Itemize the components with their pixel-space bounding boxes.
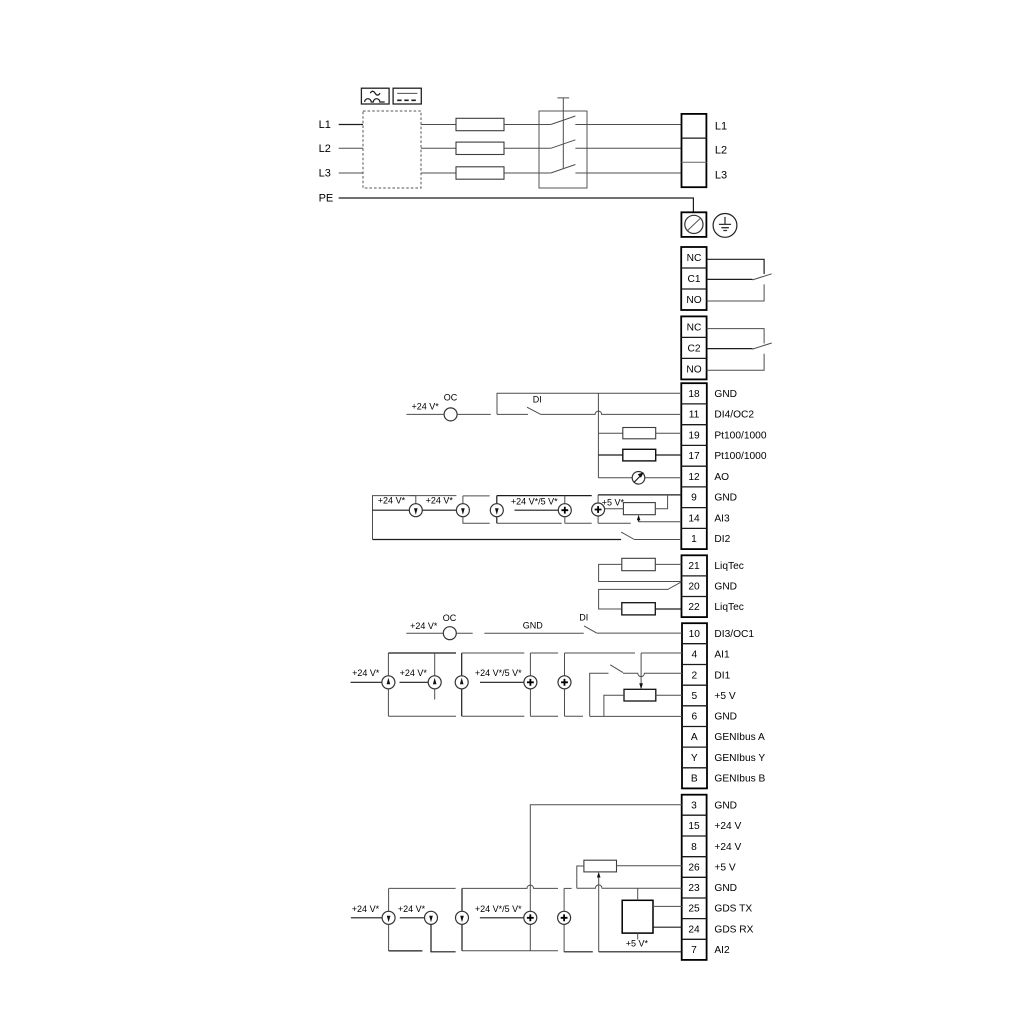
svg-text:+5 V: +5 V xyxy=(714,691,735,702)
svg-text:Pt100/1000: Pt100/1000 xyxy=(714,431,766,442)
svg-text:NO: NO xyxy=(686,364,701,375)
svg-text:NC: NC xyxy=(687,253,702,264)
svg-text:+24 V*/5 V*: +24 V*/5 V* xyxy=(511,496,558,506)
svg-text:A: A xyxy=(691,732,698,743)
svg-text:19: 19 xyxy=(688,431,700,442)
svg-text:GND: GND xyxy=(714,389,737,400)
svg-text:NO: NO xyxy=(686,295,701,306)
svg-text:L2: L2 xyxy=(715,145,727,157)
svg-text:AI3: AI3 xyxy=(714,513,730,524)
svg-text:+24 V*: +24 V* xyxy=(398,904,426,914)
svg-text:+5 V*: +5 V* xyxy=(626,939,649,949)
svg-text:GENIbus B: GENIbus B xyxy=(714,774,765,785)
svg-text:GND: GND xyxy=(714,883,737,894)
svg-text:8: 8 xyxy=(691,842,697,853)
svg-text:GDS RX: GDS RX xyxy=(714,924,753,935)
svg-text:DI: DI xyxy=(533,395,542,405)
svg-text:+24 V*: +24 V* xyxy=(378,495,406,505)
svg-text:10: 10 xyxy=(689,629,701,640)
svg-text:21: 21 xyxy=(688,561,700,572)
svg-text:L2: L2 xyxy=(319,143,331,155)
svg-text:3: 3 xyxy=(691,800,697,811)
svg-text:DI3/OC1: DI3/OC1 xyxy=(714,629,754,640)
svg-text:5: 5 xyxy=(691,691,697,702)
svg-text:+24 V: +24 V xyxy=(714,821,741,832)
svg-text:AI1: AI1 xyxy=(714,650,730,661)
svg-text:OC: OC xyxy=(443,613,457,623)
svg-text:+24 V*: +24 V* xyxy=(412,402,440,412)
svg-text:Pt100/1000: Pt100/1000 xyxy=(714,451,766,462)
svg-text:18: 18 xyxy=(688,389,700,400)
svg-text:+24 V: +24 V xyxy=(714,842,741,853)
svg-text:+24 V*: +24 V* xyxy=(410,621,438,631)
svg-text:LiqTec: LiqTec xyxy=(714,561,743,572)
svg-text:GND: GND xyxy=(714,493,737,504)
svg-text:+5 V*: +5 V* xyxy=(602,497,625,507)
svg-text:GND: GND xyxy=(714,712,737,723)
svg-text:+24 V*: +24 V* xyxy=(352,668,380,678)
svg-text:14: 14 xyxy=(688,513,700,524)
svg-text:GENIbus A: GENIbus A xyxy=(714,732,765,743)
svg-text:26: 26 xyxy=(688,862,700,873)
svg-text:C2: C2 xyxy=(687,343,700,354)
svg-text:+5 V: +5 V xyxy=(714,862,735,873)
svg-text:4: 4 xyxy=(691,650,697,661)
svg-text:23: 23 xyxy=(688,883,700,894)
svg-text:GND: GND xyxy=(714,800,737,811)
svg-text:12: 12 xyxy=(688,472,700,483)
svg-text:24: 24 xyxy=(688,924,700,935)
svg-text:DI1: DI1 xyxy=(714,670,730,681)
svg-text:L3: L3 xyxy=(715,169,727,181)
svg-text:DI4/OC2: DI4/OC2 xyxy=(714,410,754,421)
svg-text:+24 V*/5 V*: +24 V*/5 V* xyxy=(475,904,522,914)
svg-text:15: 15 xyxy=(688,821,700,832)
svg-text:11: 11 xyxy=(689,410,700,421)
svg-text:LiqTec: LiqTec xyxy=(714,602,743,613)
svg-text:NC: NC xyxy=(687,322,702,333)
svg-text:GND: GND xyxy=(714,582,737,593)
svg-text:AO: AO xyxy=(714,472,729,483)
svg-text:1: 1 xyxy=(691,534,697,545)
svg-text:+24 V*: +24 V* xyxy=(352,904,380,914)
svg-text:L1: L1 xyxy=(319,119,331,131)
svg-text:+24 V*: +24 V* xyxy=(426,496,454,506)
svg-text:17: 17 xyxy=(688,451,700,462)
svg-text:L1: L1 xyxy=(715,121,727,133)
svg-text:+24 V*: +24 V* xyxy=(400,668,428,678)
svg-text:DI2: DI2 xyxy=(714,534,730,545)
svg-text:C1: C1 xyxy=(687,274,700,285)
svg-text:20: 20 xyxy=(688,582,700,593)
svg-text:DI: DI xyxy=(579,613,588,623)
svg-text:AI2: AI2 xyxy=(714,945,730,956)
svg-text:22: 22 xyxy=(688,602,700,613)
svg-text:GDS TX: GDS TX xyxy=(714,904,752,915)
svg-text:L3: L3 xyxy=(319,168,331,180)
svg-text:OC: OC xyxy=(444,393,458,403)
svg-text:2: 2 xyxy=(691,670,697,681)
svg-text:9: 9 xyxy=(691,493,697,504)
svg-text:B: B xyxy=(691,774,698,785)
svg-text:GENIbus Y: GENIbus Y xyxy=(714,753,765,764)
svg-text:GND: GND xyxy=(523,621,544,631)
svg-text:7: 7 xyxy=(691,945,697,956)
svg-text:Y: Y xyxy=(691,753,698,764)
svg-text:+24 V*/5 V*: +24 V*/5 V* xyxy=(475,668,522,678)
svg-text:6: 6 xyxy=(691,712,697,723)
svg-text:PE: PE xyxy=(319,193,334,205)
svg-text:25: 25 xyxy=(688,904,700,915)
